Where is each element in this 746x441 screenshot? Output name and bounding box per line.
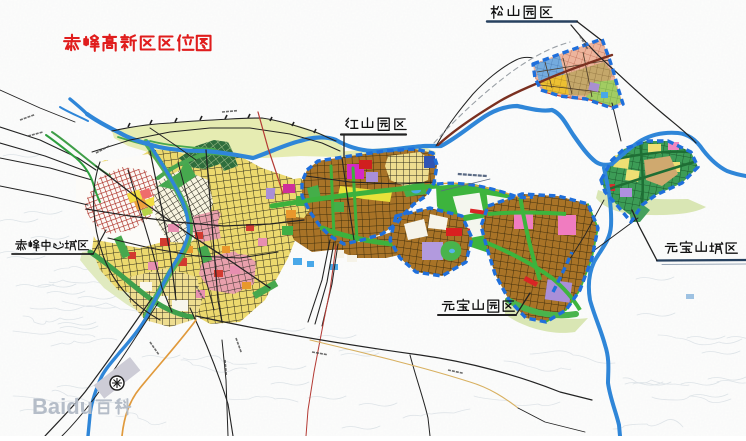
svg-text:Baidu: Baidu (32, 394, 93, 419)
